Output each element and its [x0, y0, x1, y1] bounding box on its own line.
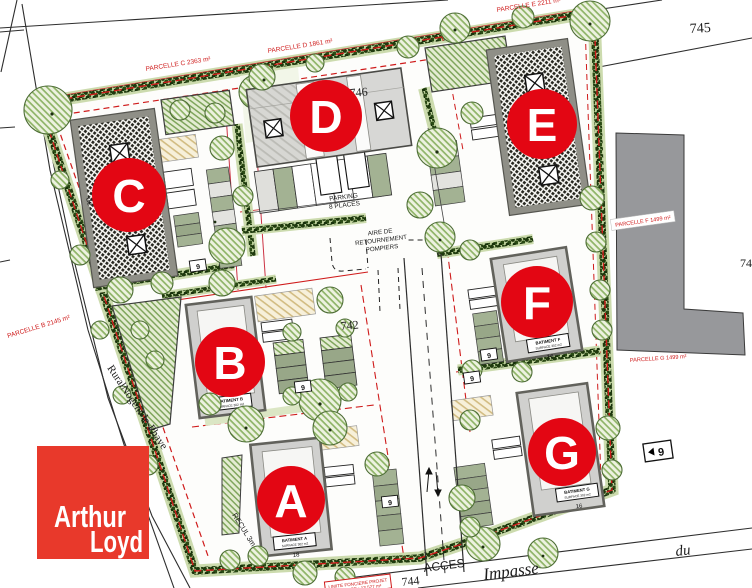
svg-text:du: du — [675, 542, 692, 560]
svg-text:742: 742 — [740, 256, 752, 270]
svg-text:745: 745 — [689, 21, 711, 37]
svg-text:D: D — [309, 91, 342, 143]
svg-text:744: 744 — [401, 573, 420, 588]
svg-text:A: A — [274, 475, 307, 527]
svg-text:Loyd: Loyd — [90, 524, 143, 559]
svg-text:B: B — [213, 337, 246, 389]
svg-text:742: 742 — [340, 317, 359, 333]
svg-text:C: C — [112, 170, 145, 222]
svg-text:G: G — [544, 427, 580, 479]
svg-text:18: 18 — [293, 552, 301, 559]
svg-text:F: F — [523, 277, 551, 329]
svg-text:E: E — [527, 99, 558, 151]
